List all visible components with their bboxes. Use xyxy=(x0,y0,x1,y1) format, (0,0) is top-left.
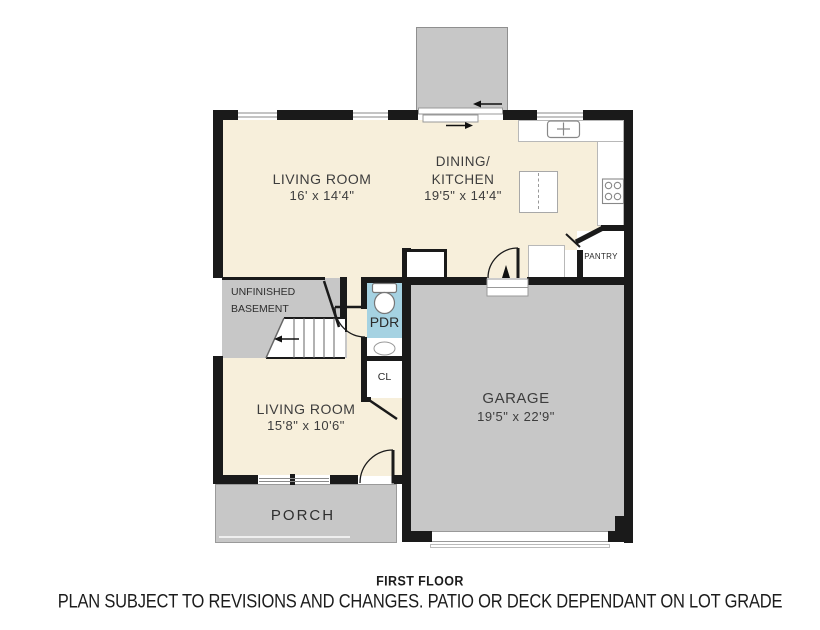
room-label-garage: GARAGE 19'5" x 22'9" xyxy=(416,389,616,425)
toilet-icon xyxy=(373,284,397,314)
room-label-living-lower: LIVING ROOM 15'8" x 10'6" xyxy=(206,400,406,435)
room-label-pdr: PDR xyxy=(364,313,405,331)
stove-icon xyxy=(603,179,624,204)
kitchen-sink-icon xyxy=(548,121,580,138)
basement-stairs-icon xyxy=(266,318,345,358)
sink-basin-icon xyxy=(374,342,395,355)
sliding-door-icon xyxy=(419,101,503,130)
room-label-closet: CL xyxy=(364,371,405,385)
floor-title: FIRST FLOOR xyxy=(20,573,820,588)
door-swings xyxy=(324,228,603,484)
room-label-dining-kitchen: DINING/ KITCHEN 19'5" x 14'4" xyxy=(363,153,563,205)
garage-entry-door-arc xyxy=(488,248,518,278)
plan-linework xyxy=(0,0,820,630)
floor-plan: LIVING ROOM 16' x 14'4" DINING/ KITCHEN … xyxy=(0,0,820,630)
entry-arrow-icon xyxy=(502,265,510,278)
room-label-porch: PORCH xyxy=(233,506,373,526)
garage-entry-steps xyxy=(487,265,528,296)
pantry-angled-wall xyxy=(576,228,603,242)
room-label-pantry: PANTRY xyxy=(577,252,625,262)
front-door-arc xyxy=(360,450,393,483)
disclaimer-text: PLAN SUBJECT TO REVISIONS AND CHANGES. P… xyxy=(32,591,808,613)
room-label-basement: UNFINISHED BASEMENT xyxy=(231,284,341,318)
